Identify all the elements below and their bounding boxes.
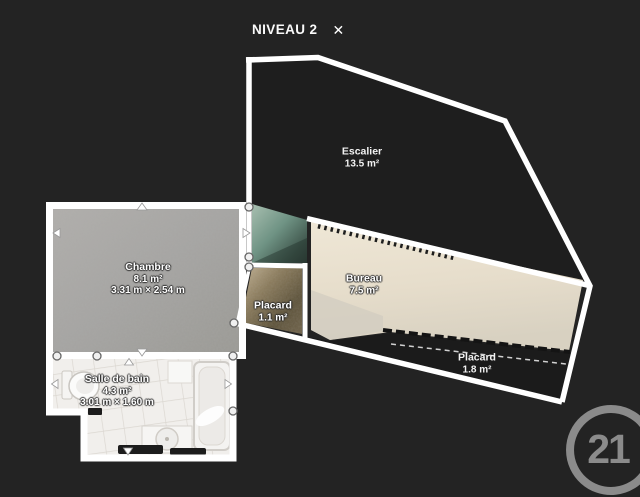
floorplan-viewer: NIVEAU 2 ✕ bbox=[0, 0, 640, 497]
level-titlebar: NIVEAU 2 ✕ bbox=[252, 22, 344, 37]
room-chambre-area[interactable] bbox=[53, 209, 239, 352]
logo-number: 21 bbox=[587, 426, 630, 472]
century21-logo: 21 bbox=[570, 409, 640, 491]
close-icon[interactable]: ✕ bbox=[332, 23, 344, 37]
level-title[interactable]: NIVEAU 2 bbox=[252, 22, 317, 37]
floorplan-canvas[interactable]: 21 bbox=[0, 0, 640, 497]
